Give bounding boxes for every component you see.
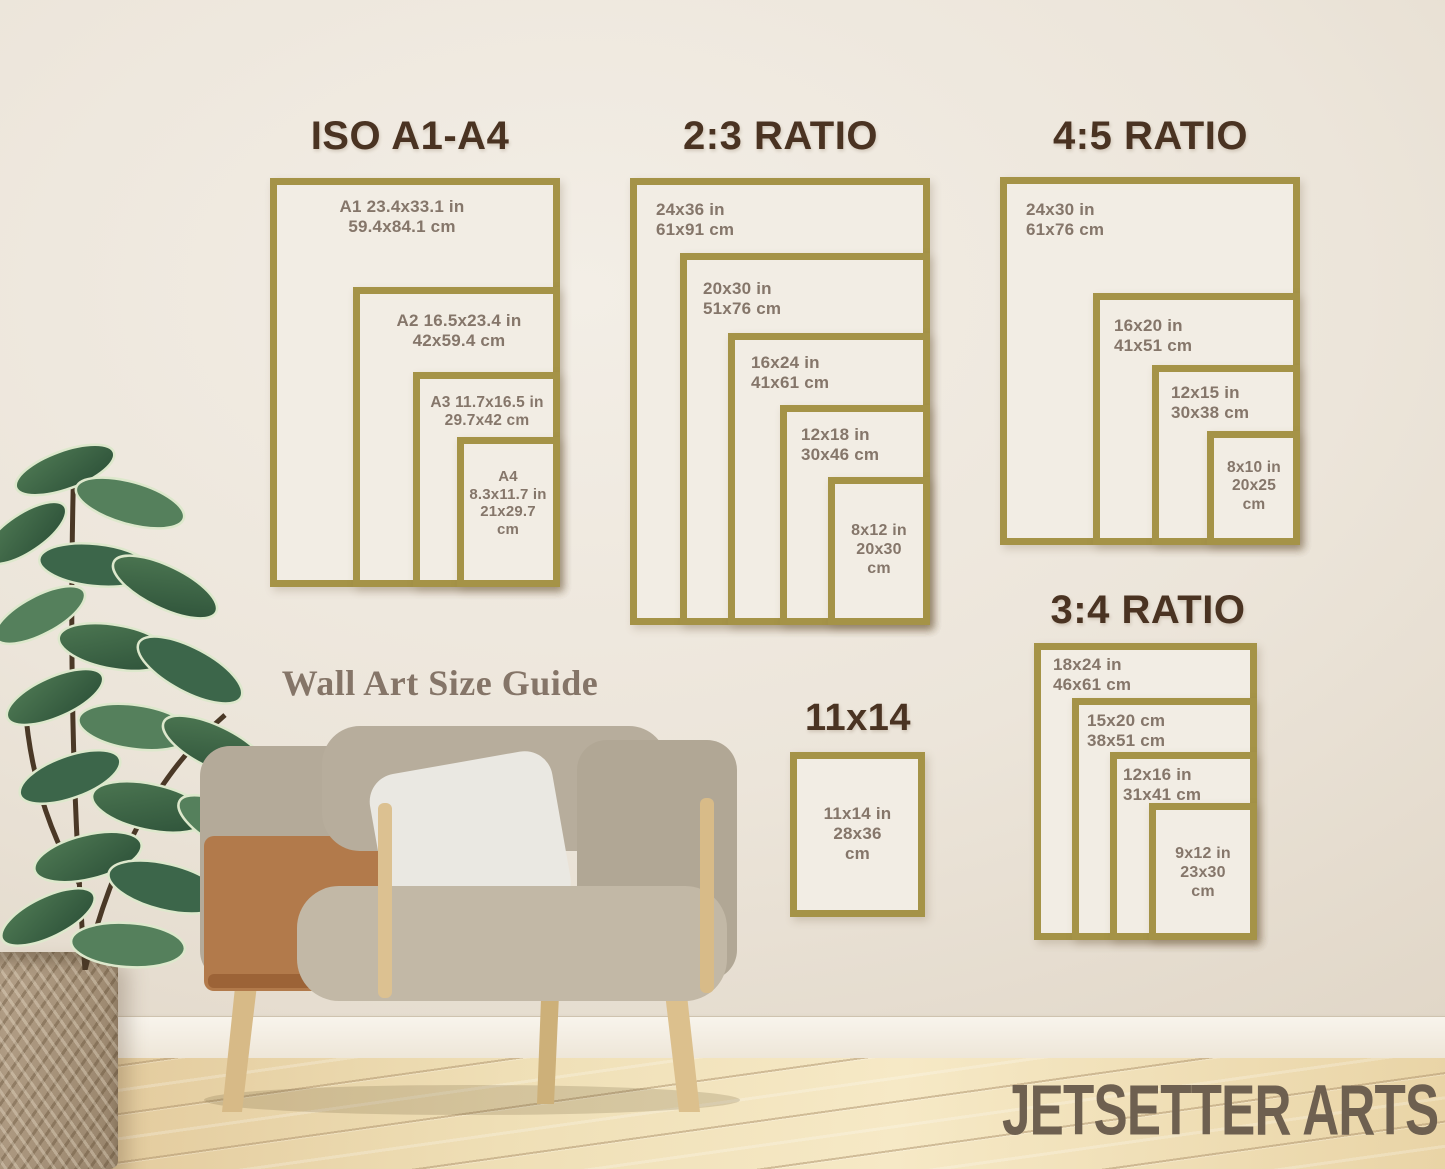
chair-wood-post-right [700, 798, 714, 993]
section-title-iso: ISO A1-A4 [255, 114, 565, 158]
size-label-20x30: 20x30 in 51x76 cm [703, 279, 781, 319]
size-label-12x18: 12x18 in 30x46 cm [801, 425, 879, 465]
armchair [182, 718, 747, 1118]
size-label-12x15: 12x15 in 30x38 cm [1171, 383, 1249, 423]
size-label-12x16: 12x16 in 31x41 cm [1123, 765, 1201, 805]
size-label-a4: A4 8.3x11.7 in 21x29.7 cm [461, 468, 555, 539]
chair-wood-post-left [378, 803, 392, 998]
plant-basket [0, 952, 118, 1169]
size-label-a3: A3 11.7x16.5 in 29.7x42 cm [419, 394, 555, 431]
size-label-8x10: 8x10 in 20x25 cm [1211, 459, 1297, 514]
chair-shadow [204, 1085, 740, 1115]
section-title-2-3: 2:3 RATIO [628, 114, 933, 158]
size-label-a1: A1 23.4x33.1 in 59.4x84.1 cm [282, 197, 522, 237]
section-title-11x14: 11x14 [778, 698, 938, 740]
section-title-3-4: 3:4 RATIO [993, 588, 1303, 632]
brand-watermark: JETSETTER ARTS [1002, 1074, 1438, 1146]
size-label-15x20: 15x20 cm 38x51 cm [1087, 711, 1165, 751]
size-label-8x12: 8x12 in 20x30 cm [832, 522, 926, 579]
size-label-18x24: 18x24 in 46x61 cm [1053, 655, 1131, 695]
size-label-24x36: 24x36 in 61x91 cm [656, 200, 734, 240]
section-title-4-5: 4:5 RATIO [993, 114, 1308, 158]
size-label-16x24: 16x24 in 41x61 cm [751, 353, 829, 393]
wall-art-size-guide-mockup: ISO A1-A4 2:3 RATIO 4:5 RATIO 3:4 RATIO … [0, 0, 1445, 1169]
size-label-24x30: 24x30 in 61x76 cm [1026, 200, 1104, 240]
guide-caption: Wall Art Size Guide [245, 662, 635, 704]
chair-seat-cushion [297, 886, 727, 1001]
size-label-9x12: 9x12 in 23x30 cm [1153, 845, 1253, 902]
size-label-a2: A2 16.5x23.4 in 42x59.4 cm [362, 311, 556, 351]
size-label-11x14: 11x14 in 28x36 cm [797, 804, 918, 864]
size-label-16x20: 16x20 in 41x51 cm [1114, 316, 1192, 356]
